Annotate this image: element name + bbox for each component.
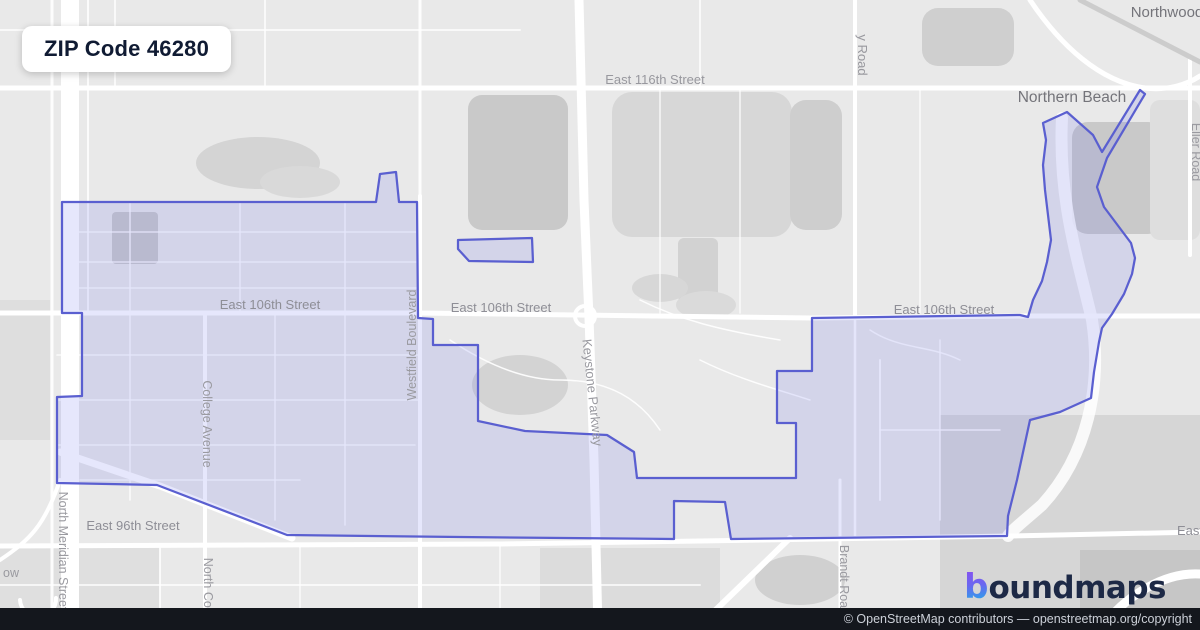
road-label: College Avenue <box>200 380 214 467</box>
road-label: East 116th Street <box>605 72 705 87</box>
boundmaps-logo: boundmaps <box>964 570 1166 604</box>
attribution-bar: © OpenStreetMap contributors — openstree… <box>0 608 1200 630</box>
road-label: East 96th Street <box>86 518 180 533</box>
attribution-text: © OpenStreetMap contributors — openstree… <box>844 612 1200 626</box>
zip-boundary-satellite <box>458 238 533 262</box>
road-label: Eller Road <box>1189 123 1200 181</box>
terrain-patch <box>468 95 568 230</box>
road-label: Brandt Road <box>837 545 851 615</box>
road-label: North Meridian Street <box>56 492 70 611</box>
terrain-patch <box>260 166 340 198</box>
road-label: ow <box>3 566 20 580</box>
terrain-patch <box>790 100 842 230</box>
terrain-patch <box>612 92 792 237</box>
road-label: y Road <box>855 34 870 75</box>
map-canvas[interactable]: East 116th Streety RoadNorthwoodNorthern… <box>0 0 1200 630</box>
boundmaps-logo-text: oundmaps <box>989 570 1167 606</box>
road-label: East 106th Street <box>894 302 995 317</box>
zip-share-card: East 116th Streety RoadNorthwoodNorthern… <box>0 0 1200 630</box>
road-label: Westfield Boulevard <box>405 289 419 400</box>
road-label: East 106th Street <box>220 297 321 312</box>
road-label: Northwood <box>1131 4 1200 21</box>
terrain-patch <box>472 355 568 415</box>
terrain-patch <box>0 300 50 440</box>
zip-title-badge: ZIP Code 46280 <box>22 26 231 72</box>
road-label: East <box>1177 523 1200 538</box>
zip-title-text: ZIP Code 46280 <box>44 36 209 61</box>
road-label: East 106th Street <box>451 300 552 315</box>
road-label: Keystone Parkway <box>579 338 605 447</box>
terrain-patch <box>922 8 1014 66</box>
boundmaps-logo-mark: b <box>964 567 988 607</box>
road-label: Northern Beach <box>1018 89 1127 106</box>
